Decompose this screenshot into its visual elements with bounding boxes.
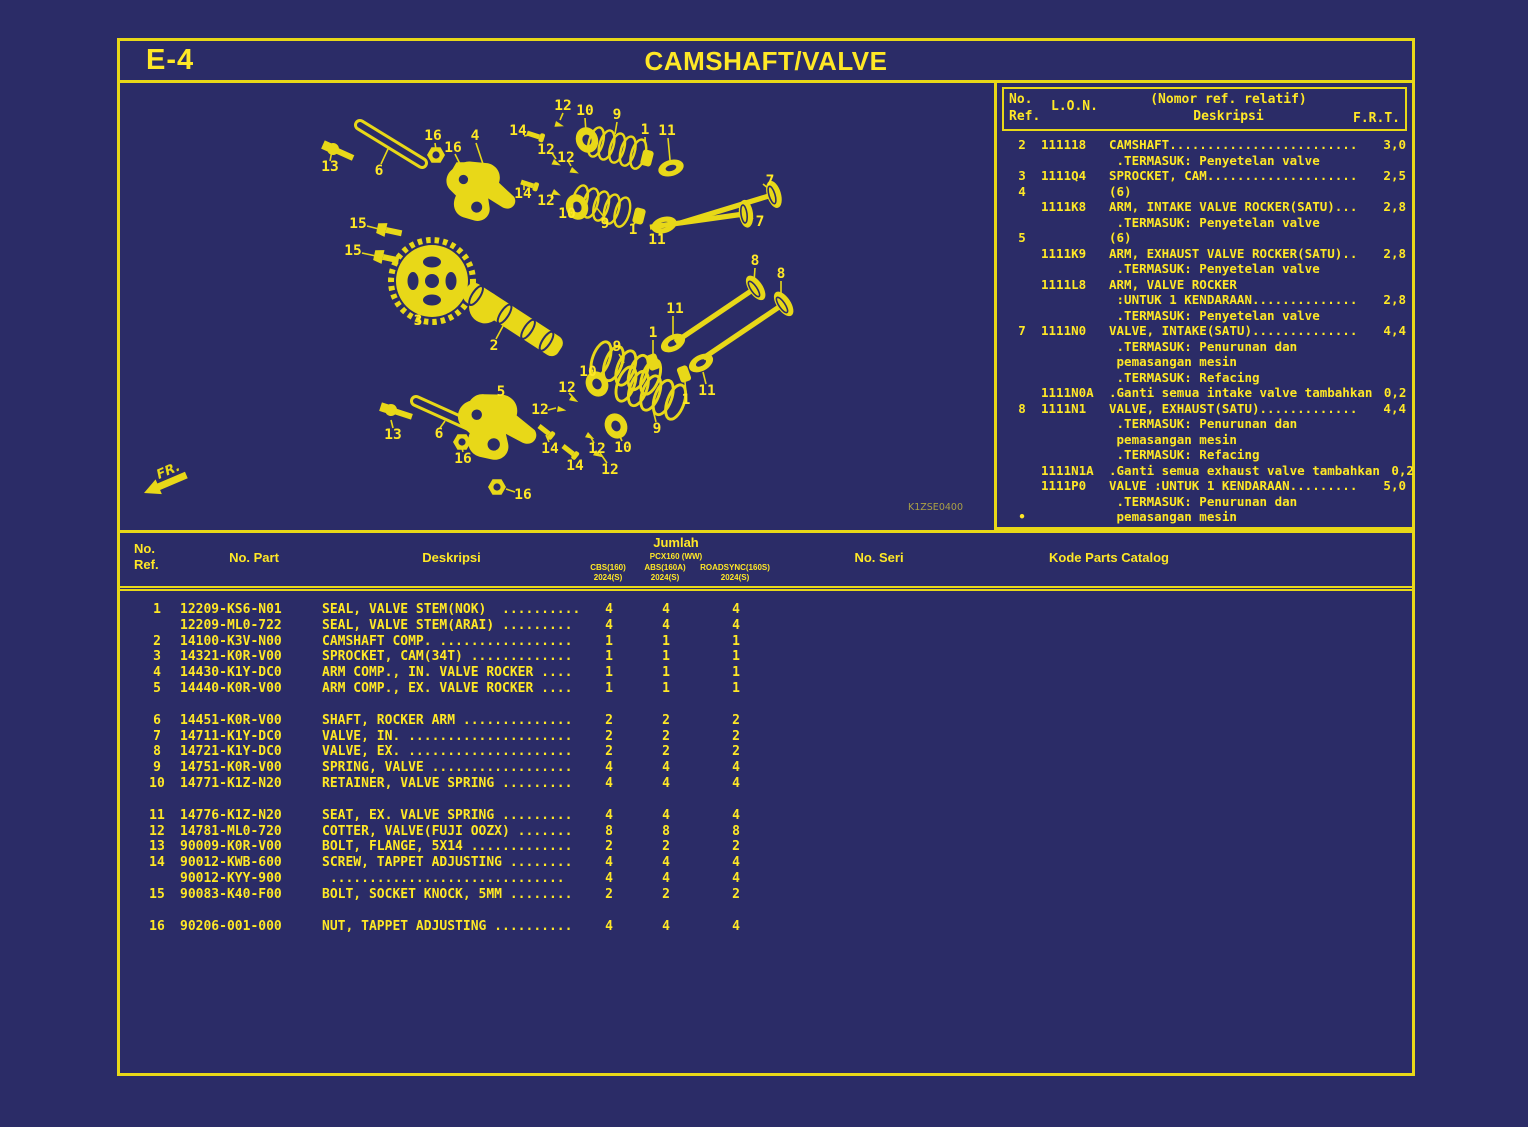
lon-cell-frt: 4,4 [1372, 401, 1406, 417]
lon-cell-lon [1041, 230, 1109, 246]
cell-q3: 4 [694, 602, 778, 618]
lon-cell-lon [1041, 354, 1109, 370]
lon-cell-lon [1041, 261, 1109, 277]
cell-desc: SPROCKET, CAM(34T) ............. [322, 649, 580, 665]
lon-cell-frt [1372, 354, 1406, 370]
lon-cell-desc: .TERMASUK: Penurunan dan [1109, 339, 1372, 355]
lon-cell-lon: 1111Q4 [1041, 168, 1109, 184]
lon-cell-frt [1372, 153, 1406, 169]
cell-ref: 7 [134, 729, 180, 745]
cell-desc: SPRING, VALVE .................. [322, 760, 580, 776]
table-row: 1390009-K0R-V00BOLT, FLANGE, 5X14 ......… [134, 839, 1412, 855]
lon-cell-desc: .TERMASUK: Refacing [1109, 447, 1372, 463]
page-frame: E-4 CAMSHAFT/VALVE [117, 38, 1415, 1076]
table-row: 514440-K0R-V00ARM COMP., EX. VALVE ROCKE… [134, 681, 1412, 697]
lon-cell-desc: ARM, EXHAUST VALVE ROCKER(SATU).. [1109, 246, 1372, 262]
cell-q2: 1 [638, 665, 694, 681]
cell-q1: 1 [580, 634, 638, 650]
lon-cell-desc: .TERMASUK: Refacing [1109, 370, 1372, 386]
cell-ref: 15 [134, 887, 180, 903]
lon-cell-lon: 1111N1 [1041, 401, 1109, 417]
cell-q1: 8 [580, 824, 638, 840]
lon-cell-lon: 1111K8 [1041, 199, 1109, 215]
cell-q1: 1 [580, 665, 638, 681]
lon-header-ref-line2: Ref. [1009, 108, 1051, 125]
lon-cell-ref: 3 [1003, 168, 1041, 184]
cell-desc: .............................. [322, 871, 580, 887]
cell-q3: 4 [694, 776, 778, 792]
lon-cell-lon [1041, 339, 1109, 355]
lon-row: :UNTUK 1 KENDARAAN..............2,8 [1003, 292, 1406, 308]
lon-row: 1111L8ARM, VALVE ROCKER [1003, 277, 1406, 293]
lon-row: .TERMASUK: Penyetelan valve [1003, 153, 1406, 169]
cell-q1: 2 [580, 887, 638, 903]
lon-cell-lon [1041, 184, 1109, 200]
cell-q1: 2 [580, 839, 638, 855]
cell-part: 14430-K1Y-DC0 [180, 665, 322, 681]
cell-desc: SCREW, TAPPET ADJUSTING ........ [322, 855, 580, 871]
lon-cell-lon: 1111N0 [1041, 323, 1109, 339]
lon-header-ref-line1: No. [1009, 91, 1051, 108]
cell-desc: SHAFT, ROCKER ARM .............. [322, 713, 580, 729]
lon-cell-lon: 1111N0A [1041, 385, 1109, 401]
table-row: 1014771-K1Z-N20RETAINER, VALVE SPRING ..… [134, 776, 1412, 792]
lon-cell-ref: 5 [1003, 230, 1041, 246]
lon-cell-lon: 1111P0 [1041, 478, 1109, 494]
cell-q1: 4 [580, 618, 638, 634]
lon-row: • pemasangan mesin [1003, 509, 1406, 525]
valve-cotter [557, 406, 567, 413]
lon-cell-ref [1003, 494, 1041, 510]
valve-cotter [551, 159, 562, 168]
lon-cell-lon [1041, 292, 1109, 308]
cell-desc: SEAL, VALVE STEM(NOK) .......... [322, 602, 580, 618]
lon-row: .TERMASUK: Penyetelan valve [1003, 261, 1406, 277]
lon-cell-ref [1003, 339, 1041, 355]
cell-part: 14440-K0R-V00 [180, 681, 322, 697]
cell-q3: 4 [694, 871, 778, 887]
cell-q1: 4 [580, 776, 638, 792]
lon-row: 81111N1VALVE, EXHAUST(SATU).............… [1003, 401, 1406, 417]
cell-part: 90206-001-000 [180, 919, 322, 935]
cell-q3: 4 [694, 919, 778, 935]
lon-cell-frt [1372, 447, 1406, 463]
lon-header-desc: (Nomor ref. relatif) Deskripsi [1115, 89, 1342, 129]
cell-ref: 8 [134, 744, 180, 760]
cell-desc: RETAINER, VALVE SPRING ......... [322, 776, 580, 792]
lon-cell-lon: 1111N1A [1041, 463, 1109, 479]
lon-cell-frt [1372, 184, 1406, 200]
lon-cell-desc: ARM, VALVE ROCKER [1109, 277, 1372, 293]
lon-cell-ref [1003, 153, 1041, 169]
lon-row: 4(6) [1003, 184, 1406, 200]
cell-part: 12209-ML0-722 [180, 618, 322, 634]
cell-q2: 4 [638, 808, 694, 824]
cell-part: 90012-KYY-900 [180, 871, 322, 887]
parts-table-body: 112209-KS6-N01SEAL, VALVE STEM(NOK) ....… [120, 588, 1412, 934]
lon-cell-frt: 3,0 [1372, 137, 1406, 153]
lon-cell-desc: .TERMASUK: Penyetelan valve [1109, 308, 1372, 324]
lon-row: 71111N0VALVE, INTAKE(SATU)..............… [1003, 323, 1406, 339]
cell-desc: NUT, TAPPET ADJUSTING .......... [322, 919, 580, 935]
lon-cell-lon [1041, 509, 1109, 525]
cell-q2: 2 [638, 839, 694, 855]
cell-part: 14751-K0R-V00 [180, 760, 322, 776]
lon-cell-ref: 8 [1003, 401, 1041, 417]
cell-q1: 4 [580, 602, 638, 618]
parts-group: 614451-K0R-V00SHAFT, ROCKER ARM ........… [134, 713, 1412, 792]
cell-desc: ARM COMP., IN. VALVE ROCKER .... [322, 665, 580, 681]
lon-cell-lon: 1111K9 [1041, 246, 1109, 262]
cell-q2: 2 [638, 887, 694, 903]
cell-part: 90083-K40-F00 [180, 887, 322, 903]
cell-q3: 4 [694, 618, 778, 634]
cell-desc: VALVE, EX. ..................... [322, 744, 580, 760]
rocker-shaft-top [360, 125, 422, 163]
lon-panel: No. Ref. L.O.N. (Nomor ref. relatif) Des… [994, 83, 1412, 530]
lon-cell-ref [1003, 463, 1041, 479]
parts-group: 1690206-001-000NUT, TAPPET ADJUSTING ...… [134, 919, 1412, 935]
table-row: 90012-KYY-900 ..........................… [134, 871, 1412, 887]
cell-part: 14100-K3V-N00 [180, 634, 322, 650]
lon-cell-lon: 1111L8 [1041, 277, 1109, 293]
cell-part: 12209-KS6-N01 [180, 602, 322, 618]
cell-q1: 4 [580, 760, 638, 776]
lon-cell-desc: .TERMASUK: Penurunan dan [1109, 416, 1372, 432]
lon-row: .TERMASUK: Penyetelan valve [1003, 308, 1406, 324]
lon-cell-frt [1372, 261, 1406, 277]
cell-ref: 9 [134, 760, 180, 776]
cell-q3: 2 [694, 887, 778, 903]
cell-q2: 1 [638, 681, 694, 697]
cell-ref [134, 618, 180, 634]
cell-q3: 4 [694, 760, 778, 776]
lon-cell-desc: .TERMASUK: Penurunan dan [1109, 494, 1372, 510]
lon-cell-desc: pemasangan mesin [1109, 432, 1372, 448]
header-variant-roadsync: ROADSYNC(160S) 2024(S) [693, 563, 777, 583]
cell-q2: 1 [638, 649, 694, 665]
header-model: PCX160 (WW) [579, 552, 773, 561]
cell-q2: 8 [638, 824, 694, 840]
lon-cell-frt: 2,5 [1372, 168, 1406, 184]
lon-cell-ref [1003, 215, 1041, 231]
cell-desc: SEAL, VALVE STEM(ARAI) ......... [322, 618, 580, 634]
cell-ref: 14 [134, 855, 180, 871]
tappet-nut [427, 147, 445, 163]
cell-ref [134, 871, 180, 887]
cell-q2: 4 [638, 760, 694, 776]
lon-cell-ref: 7 [1003, 323, 1041, 339]
cell-desc: ARM COMP., EX. VALVE ROCKER .... [322, 681, 580, 697]
rocker-arm-exhaust [455, 392, 539, 463]
lon-panel-header: No. Ref. L.O.N. (Nomor ref. relatif) Des… [1002, 87, 1407, 131]
lon-cell-lon [1041, 370, 1109, 386]
lon-row: 5(6) [1003, 230, 1406, 246]
cell-part: 90009-K0R-V00 [180, 839, 322, 855]
cell-q3: 1 [694, 649, 778, 665]
cell-ref: 11 [134, 808, 180, 824]
lon-cell-desc: .Ganti semua exhaust valve tambahkan [1109, 463, 1380, 479]
cell-desc: COTTER, VALVE(FUJI OOZX) ....... [322, 824, 580, 840]
table-row: 314321-K0R-V00SPROCKET, CAM(34T) .......… [134, 649, 1412, 665]
table-row: 1214781-ML0-720COTTER, VALVE(FUJI OOZX) … [134, 824, 1412, 840]
parts-group: 1114776-K1Z-N20SEAT, EX. VALVE SPRING ..… [134, 808, 1412, 903]
lon-cell-frt [1372, 416, 1406, 432]
lon-header-lon: L.O.N. [1051, 89, 1115, 129]
lon-cell-frt [1372, 509, 1406, 525]
cell-q2: 2 [638, 713, 694, 729]
cell-q3: 1 [694, 634, 778, 650]
header-deskripsi: Deskripsi [324, 550, 579, 565]
cell-q2: 4 [638, 776, 694, 792]
lon-cell-frt [1372, 308, 1406, 324]
lon-cell-ref [1003, 308, 1041, 324]
table-row: 1690206-001-000NUT, TAPPET ADJUSTING ...… [134, 919, 1412, 935]
cell-ref: 6 [134, 713, 180, 729]
lon-cell-frt: 0,2 [1372, 385, 1406, 401]
lon-cell-frt [1372, 339, 1406, 355]
lon-cell-ref: • [1003, 509, 1041, 525]
cell-q2: 4 [638, 618, 694, 634]
lon-cell-desc: .TERMASUK: Penyetelan valve [1109, 153, 1372, 169]
cell-desc: SEAT, EX. VALVE SPRING ......... [322, 808, 580, 824]
intake-valve [677, 179, 785, 236]
cell-q1: 2 [580, 744, 638, 760]
cell-q3: 4 [694, 855, 778, 871]
table-row: 12209-ML0-722SEAL, VALVE STEM(ARAI) ....… [134, 618, 1412, 634]
cell-ref: 12 [134, 824, 180, 840]
valve-cotter [569, 167, 580, 176]
lon-cell-lon: 111118 [1041, 137, 1109, 153]
lon-cell-ref [1003, 370, 1041, 386]
spring-retainer [601, 410, 632, 443]
cell-q1: 2 [580, 729, 638, 745]
cell-ref: 10 [134, 776, 180, 792]
cell-ref: 4 [134, 665, 180, 681]
lon-row: pemasangan mesin [1003, 432, 1406, 448]
flange-bolt [321, 139, 356, 163]
parts-table: No. Ref. No. Part Deskripsi Jumlah PCX16… [120, 530, 1412, 1070]
lon-cell-ref [1003, 432, 1041, 448]
lon-cell-ref [1003, 199, 1041, 215]
header-jumlah: Jumlah [579, 535, 773, 550]
lon-cell-frt [1372, 277, 1406, 293]
knock-bolt [376, 221, 403, 240]
cell-q3: 2 [694, 729, 778, 745]
lon-cell-lon [1041, 494, 1109, 510]
camshaft [455, 280, 566, 368]
tappet-screw [560, 442, 580, 460]
cell-q2: 4 [638, 602, 694, 618]
lon-row: .TERMASUK: Penurunan dan [1003, 494, 1406, 510]
lon-cell-frt: 2,8 [1372, 246, 1406, 262]
page-title: CAMSHAFT/VALVE [120, 46, 1412, 77]
table-row: 1114776-K1Z-N20SEAT, EX. VALVE SPRING ..… [134, 808, 1412, 824]
parts-table-header: No. Ref. No. Part Deskripsi Jumlah PCX16… [120, 533, 1412, 588]
valve-cotter [569, 395, 580, 405]
lon-cell-desc: .TERMASUK: Penyetelan valve [1109, 215, 1372, 231]
cell-q2: 2 [638, 744, 694, 760]
lon-header-ref: No. Ref. [1004, 89, 1051, 129]
lon-row: .TERMASUK: Penyetelan valve [1003, 215, 1406, 231]
valve-cotter [551, 189, 562, 198]
lon-row: .TERMASUK: Refacing [1003, 370, 1406, 386]
cell-q3: 8 [694, 824, 778, 840]
cell-ref: 2 [134, 634, 180, 650]
lon-cell-frt [1372, 215, 1406, 231]
cell-ref: 3 [134, 649, 180, 665]
table-row: 414430-K1Y-DC0ARM COMP., IN. VALVE ROCKE… [134, 665, 1412, 681]
cell-q3: 2 [694, 839, 778, 855]
cell-q2: 1 [638, 634, 694, 650]
cell-q1: 1 [580, 649, 638, 665]
lon-cell-ref [1003, 261, 1041, 277]
table-row: 112209-KS6-N01SEAL, VALVE STEM(NOK) ....… [134, 602, 1412, 618]
lon-cell-lon [1041, 447, 1109, 463]
lon-cell-ref [1003, 447, 1041, 463]
lon-cell-frt [1372, 230, 1406, 246]
lon-cell-frt: 4,4 [1372, 323, 1406, 339]
lon-row: .TERMASUK: Penurunan dan [1003, 416, 1406, 432]
flange-bolt [379, 401, 414, 423]
valve-cotter [554, 121, 564, 129]
lon-header-deskripsi: Deskripsi [1115, 108, 1342, 125]
cell-part: 90012-KWB-600 [180, 855, 322, 871]
cell-part: 14771-K1Z-N20 [180, 776, 322, 792]
header-no-ref: No. Ref. [134, 541, 159, 573]
lon-row: 1111N0A.Ganti semua intake valve tambahk… [1003, 385, 1406, 401]
lon-cell-desc: .TERMASUK: Penyetelan valve [1109, 261, 1372, 277]
table-row: 214100-K3V-N00CAMSHAFT COMP. ...........… [134, 634, 1412, 650]
lon-row: 1111N1A.Ganti semua exhaust valve tambah… [1003, 463, 1406, 479]
lon-header-frt: F.R.T. [1342, 89, 1405, 129]
table-row: 614451-K0R-V00SHAFT, ROCKER ARM ........… [134, 713, 1412, 729]
lon-cell-lon [1041, 215, 1109, 231]
lon-cell-ref [1003, 416, 1041, 432]
cell-part: 14781-ML0-720 [180, 824, 322, 840]
table-row: 714711-K1Y-DC0VALVE, IN. ...............… [134, 729, 1412, 745]
diagram-art: FR. K1ZSE0400 [120, 83, 991, 530]
lon-cell-desc: (6) [1109, 184, 1372, 200]
cell-q2: 4 [638, 919, 694, 935]
lon-cell-ref [1003, 385, 1041, 401]
lon-cell-frt: 0,2 [1380, 463, 1414, 479]
cell-part: 14711-K1Y-DC0 [180, 729, 322, 745]
lon-row: 1111P0VALVE :UNTUK 1 KENDARAAN.........5… [1003, 478, 1406, 494]
lon-header-relatif: (Nomor ref. relatif) [1115, 91, 1342, 108]
lon-cell-ref: 4 [1003, 184, 1041, 200]
cam-sprocket [391, 240, 473, 322]
lon-cell-lon [1041, 416, 1109, 432]
lon-cell-desc: pemasangan mesin [1109, 509, 1372, 525]
cell-q3: 4 [694, 808, 778, 824]
lon-cell-desc: ARM, INTAKE VALVE ROCKER(SATU)... [1109, 199, 1372, 215]
lon-cell-ref [1003, 292, 1041, 308]
lon-row: .TERMASUK: Refacing [1003, 447, 1406, 463]
header-variant-abs: ABS(160A) 2024(S) [637, 563, 693, 583]
lon-cell-frt: 2,8 [1372, 199, 1406, 215]
lon-cell-ref: 2 [1003, 137, 1041, 153]
cell-q3: 1 [694, 665, 778, 681]
cell-part: 14721-K1Y-DC0 [180, 744, 322, 760]
lon-cell-desc: (6) [1109, 230, 1372, 246]
lon-cell-frt [1372, 432, 1406, 448]
cell-q3: 1 [694, 681, 778, 697]
tappet-screw [526, 129, 546, 143]
lon-cell-desc: :UNTUK 1 KENDARAAN.............. [1109, 292, 1372, 308]
lon-cell-desc: pemasangan mesin [1109, 354, 1372, 370]
table-row: 1490012-KWB-600SCREW, TAPPET ADJUSTING .… [134, 855, 1412, 871]
lon-cell-desc: CAMSHAFT......................... [1109, 137, 1372, 153]
header-no-part: No. Part [184, 550, 324, 565]
tappet-nut [488, 479, 506, 495]
lon-cell-ref [1003, 246, 1041, 262]
lon-cell-desc: VALVE, EXHAUST(SATU)............. [1109, 401, 1372, 417]
lon-cell-ref [1003, 277, 1041, 293]
header-kode-parts-catalog: Kode Parts Catalog [959, 550, 1259, 565]
lon-cell-desc: SPROCKET, CAM.................... [1109, 168, 1372, 184]
fr-arrow: FR. [137, 458, 190, 500]
parts-group: 112209-KS6-N01SEAL, VALVE STEM(NOK) ....… [134, 602, 1412, 697]
spring-seat [656, 157, 685, 180]
lon-cell-desc: VALVE :UNTUK 1 KENDARAAN......... [1109, 478, 1372, 494]
lon-cell-frt [1372, 370, 1406, 386]
title-bar: E-4 CAMSHAFT/VALVE [120, 41, 1412, 83]
lon-row: 1111K8ARM, INTAKE VALVE ROCKER(SATU)...2… [1003, 199, 1406, 215]
lon-row: 2111118CAMSHAFT.........................… [1003, 137, 1406, 153]
lon-cell-lon [1041, 308, 1109, 324]
stem-seal [632, 207, 647, 225]
cell-q1: 4 [580, 808, 638, 824]
tappet-screw [536, 422, 556, 440]
lon-cell-ref [1003, 354, 1041, 370]
lon-row: 31111Q4SPROCKET, CAM....................… [1003, 168, 1406, 184]
lon-cell-frt: 2,8 [1372, 292, 1406, 308]
cell-q2: 4 [638, 871, 694, 887]
lon-rows: 2111118CAMSHAFT.........................… [997, 134, 1412, 525]
table-row: 814721-K1Y-DC0VALVE, EX. ...............… [134, 744, 1412, 760]
cell-q1: 4 [580, 855, 638, 871]
lon-cell-ref [1003, 478, 1041, 494]
lon-cell-lon [1041, 153, 1109, 169]
stem-seal [640, 149, 655, 167]
exploded-diagram: FR. K1ZSE0400 12109141111361616412127141… [120, 83, 991, 530]
cell-desc: BOLT, SOCKET KNOCK, 5MM ........ [322, 887, 580, 903]
lon-cell-desc: VALVE, INTAKE(SATU).............. [1109, 323, 1372, 339]
cell-q2: 2 [638, 729, 694, 745]
lon-cell-desc: .Ganti semua intake valve tambahkan [1109, 385, 1372, 401]
table-row: 1590083-K40-F00BOLT, SOCKET KNOCK, 5MM .… [134, 887, 1412, 903]
lon-cell-lon [1041, 432, 1109, 448]
cell-ref: 13 [134, 839, 180, 855]
cell-desc: BOLT, FLANGE, 5X14 ............. [322, 839, 580, 855]
lon-row: pemasangan mesin [1003, 354, 1406, 370]
cell-q3: 2 [694, 713, 778, 729]
cell-q1: 2 [580, 713, 638, 729]
cell-part: 14321-K0R-V00 [180, 649, 322, 665]
cell-desc: CAMSHAFT COMP. ................. [322, 634, 580, 650]
valve-cotter [585, 432, 596, 442]
table-row: 914751-K0R-V00SPRING, VALVE ............… [134, 760, 1412, 776]
cell-q1: 1 [580, 681, 638, 697]
header-no-seri: No. Seri [799, 550, 959, 565]
lon-row: .TERMASUK: Penurunan dan [1003, 339, 1406, 355]
cell-ref: 5 [134, 681, 180, 697]
cell-desc: VALVE, IN. ..................... [322, 729, 580, 745]
cell-part: 14776-K1Z-N20 [180, 808, 322, 824]
cell-q1: 4 [580, 919, 638, 935]
cell-part: 14451-K0R-V00 [180, 713, 322, 729]
